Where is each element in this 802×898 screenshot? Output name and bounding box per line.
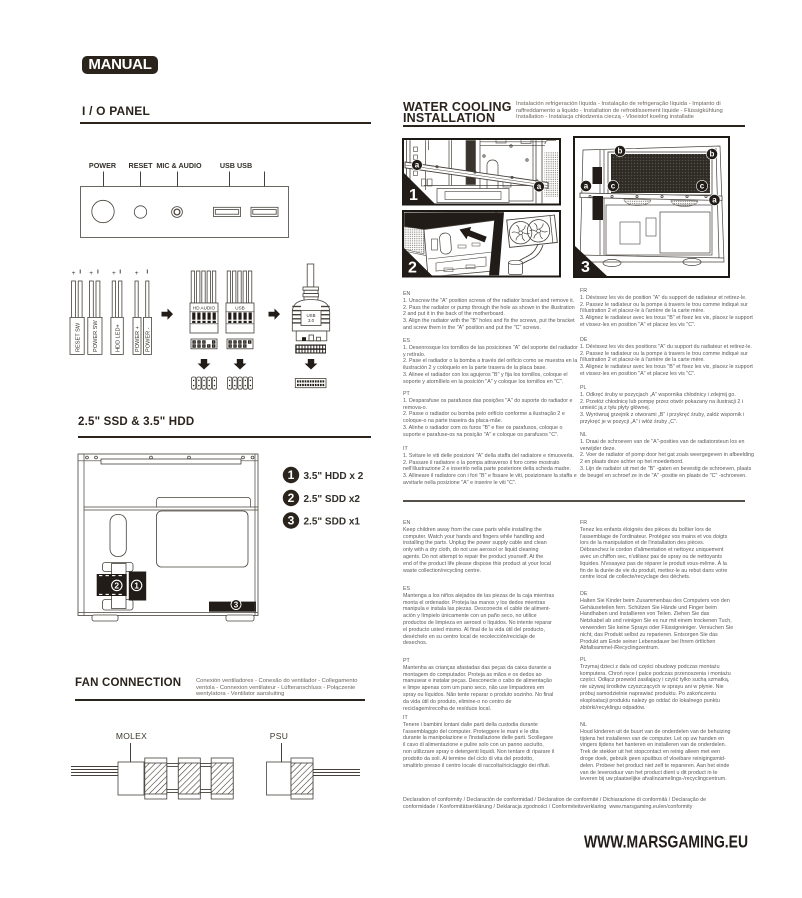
svg-text:1: 1 <box>134 581 139 591</box>
svg-text:POWER -: POWER - <box>146 327 152 352</box>
svg-text:a: a <box>415 161 420 170</box>
svg-text:b: b <box>710 150 715 159</box>
svg-text:HD AUDIO: HD AUDIO <box>193 306 216 311</box>
svg-text:1: 1 <box>288 468 295 482</box>
svg-text:MIC & AUDIO: MIC & AUDIO <box>156 161 202 170</box>
svg-text:1: 1 <box>409 187 418 204</box>
svg-text:3: 3 <box>581 259 590 276</box>
svg-text:2.5" SDD x2: 2.5" SDD x2 <box>304 494 361 505</box>
svg-text:+: + <box>112 270 116 277</box>
svg-text:3: 3 <box>288 514 295 528</box>
svg-text:PSU: PSU <box>270 731 288 741</box>
svg-text:POWER +: POWER + <box>135 326 141 352</box>
svg-text:3.5" HDD x 2: 3.5" HDD x 2 <box>304 471 364 482</box>
svg-text:c: c <box>700 182 705 191</box>
svg-text:RESET SW: RESET SW <box>75 322 81 352</box>
svg-text:c: c <box>611 182 616 191</box>
svg-text:2.5" SDD x1: 2.5" SDD x1 <box>304 516 361 527</box>
svg-text:b: b <box>618 147 623 156</box>
svg-text:+: + <box>89 270 93 277</box>
svg-text:a: a <box>537 182 542 191</box>
svg-text:USB: USB <box>235 306 244 311</box>
svg-text:2: 2 <box>288 491 295 505</box>
svg-text:MOLEX: MOLEX <box>116 731 147 741</box>
svg-text:a: a <box>584 182 589 191</box>
svg-text:3.0: 3.0 <box>308 318 315 323</box>
svg-text:POWER SW: POWER SW <box>93 320 99 352</box>
svg-text:2: 2 <box>114 581 119 591</box>
svg-text:3: 3 <box>234 601 239 610</box>
svg-text:POWER: POWER <box>89 161 117 170</box>
svg-text:+: + <box>72 270 76 277</box>
svg-text:2: 2 <box>408 260 417 277</box>
svg-text:RESET: RESET <box>129 161 154 170</box>
svg-text:HDD LED+: HDD LED+ <box>115 324 121 352</box>
svg-text:USB USB: USB USB <box>220 161 252 170</box>
svg-text:a: a <box>712 196 717 205</box>
svg-text:+: + <box>135 270 139 277</box>
